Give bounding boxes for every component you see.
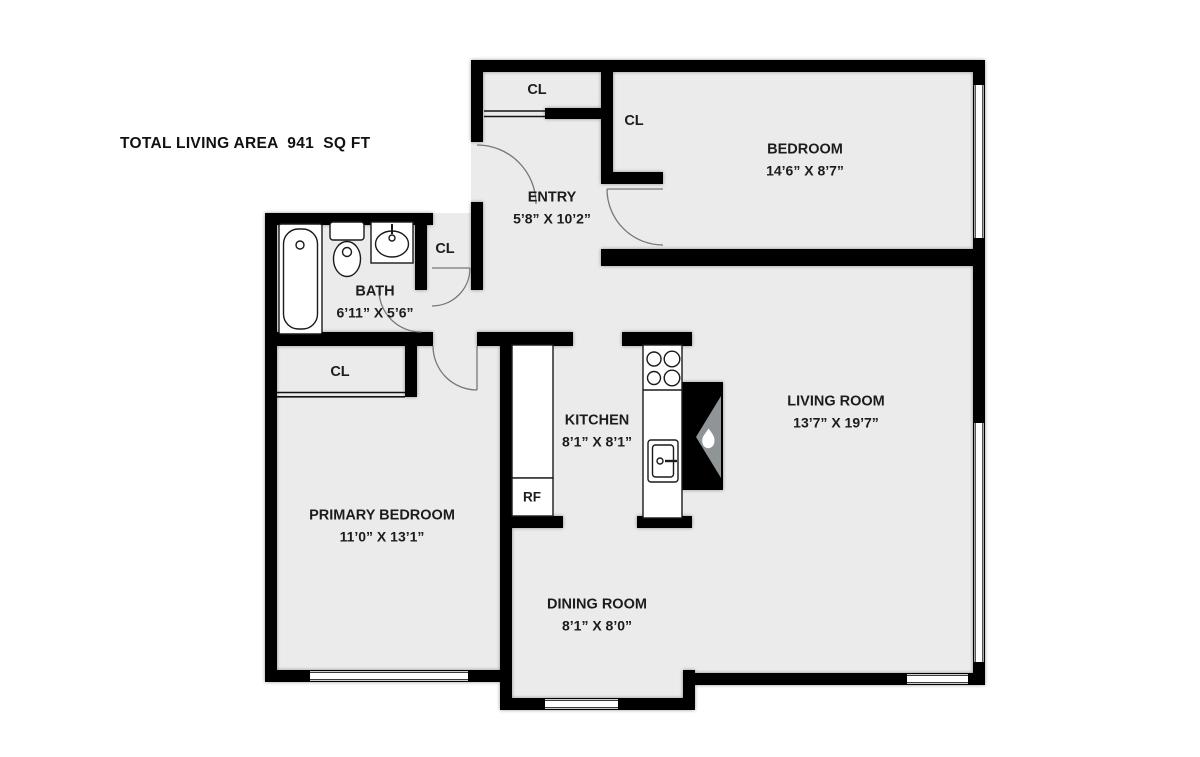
wall-entry-bedroom <box>601 72 613 184</box>
bath-sink <box>371 222 413 263</box>
bathtub <box>279 224 322 334</box>
kitchen-counter-left <box>512 345 553 478</box>
floor-plan: TOTAL LIVING AREA 941 SQ FT CL CL CL CL … <box>0 0 1200 757</box>
living-room-name: LIVING ROOM <box>787 392 884 413</box>
bath-dims: 6’11” X 5’6” <box>336 302 413 323</box>
bedroom-name: BEDROOM <box>766 140 844 161</box>
primary-bedroom-label: PRIMARY BEDROOM 11’0” X 13’1” <box>309 506 455 547</box>
bedroom-dims: 14’6” X 8’7” <box>766 160 844 181</box>
bedroom-label: BEDROOM 14’6” X 8’7” <box>766 140 844 181</box>
entry-closet-label: CL <box>527 82 546 98</box>
entry-dims: 5’8” X 10’2” <box>513 208 591 229</box>
primary-bedroom-name: PRIMARY BEDROOM <box>309 506 455 527</box>
bedroom-window <box>974 85 984 238</box>
living-room-window-bottom <box>907 674 968 684</box>
living-room-dims: 13’7” X 19’7” <box>787 412 884 433</box>
wall-left <box>265 213 277 682</box>
wall-entry-left-lower <box>471 202 483 290</box>
total-area-label: TOTAL LIVING AREA 941 SQ FT <box>120 135 370 153</box>
living-room-window-right <box>974 423 984 662</box>
primary-closet-label: CL <box>330 364 349 380</box>
primary-bedroom-dims: 11’0” X 13’1” <box>309 526 455 547</box>
entry-name: ENTRY <box>513 188 591 209</box>
bedroom-closet-label: CL <box>624 113 643 129</box>
entry-label: ENTRY 5’8” X 10’2” <box>513 188 591 229</box>
toilet <box>330 222 364 277</box>
wall-hall-kitchen-top-left <box>477 332 573 346</box>
floor-plan-drawing <box>0 0 1200 757</box>
wall-top <box>471 60 985 72</box>
kitchen-dims: 8’1” X 8’1” <box>562 431 632 452</box>
dining-room-label: DINING ROOM 8’1” X 8’0” <box>547 595 647 636</box>
dining-room-window <box>545 699 618 709</box>
wall-kitchen-top-right <box>622 332 692 346</box>
bath-name: BATH <box>336 282 413 303</box>
wall-entry-left-upper <box>471 60 483 142</box>
wall-bath-right <box>415 213 427 290</box>
wall-kitchen-bottom-left <box>500 516 563 528</box>
bath-label: BATH 6’11” X 5’6” <box>336 282 413 323</box>
wall-bedroom-closet-stub <box>601 172 663 184</box>
dining-room-name: DINING ROOM <box>547 595 647 616</box>
kitchen-name: KITCHEN <box>562 411 632 432</box>
wall-primary-closet-right <box>405 346 417 397</box>
kitchen-sink <box>648 440 678 482</box>
wall-bedroom-living-divider <box>601 249 985 266</box>
dining-room-dims: 8’1” X 8’0” <box>547 615 647 636</box>
refrigerator-label: RF <box>523 490 541 505</box>
living-room-label: LIVING ROOM 13’7” X 19’7” <box>787 392 884 433</box>
primary-bedroom-window <box>310 671 468 681</box>
hall-closet-label: CL <box>435 241 454 257</box>
kitchen-label: KITCHEN 8’1” X 8’1” <box>562 411 632 452</box>
